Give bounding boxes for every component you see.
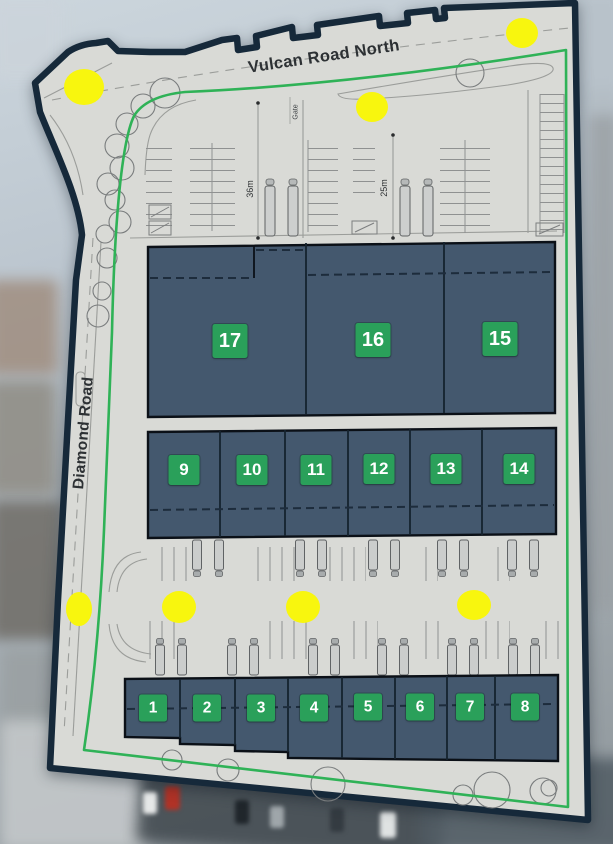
dimension-label-36m: 36m <box>245 180 255 198</box>
unit-badge-2[interactable]: 2 <box>193 695 221 722</box>
unit-badge-14[interactable]: 14 <box>504 454 535 484</box>
unit-badge-13[interactable]: 13 <box>431 454 462 484</box>
unit-badge-8[interactable]: 8 <box>511 694 539 721</box>
highlight-dot[interactable] <box>457 590 491 620</box>
unit-badge-5[interactable]: 5 <box>354 694 382 721</box>
unit-badge-15[interactable]: 15 <box>483 322 518 356</box>
unit-badge-4[interactable]: 4 <box>300 695 328 722</box>
site-plan-page: Vulcan Road North Diamond Road Gate 36m … <box>0 0 613 844</box>
highlight-dot[interactable] <box>356 92 388 122</box>
unit-block-9-14 <box>148 428 556 538</box>
unit-badge-6[interactable]: 6 <box>406 694 434 721</box>
unit-badge-16[interactable]: 16 <box>356 323 391 357</box>
dimension-label-25m: 25m <box>379 179 389 197</box>
highlight-dot[interactable] <box>66 592 92 626</box>
unit-badge-10[interactable]: 10 <box>237 455 268 485</box>
unit-badge-11[interactable]: 11 <box>301 455 332 485</box>
unit-row-middle <box>148 428 556 538</box>
highlight-dot[interactable] <box>64 69 104 105</box>
highlight-dot[interactable] <box>286 591 320 623</box>
unit-badge-9[interactable]: 9 <box>169 455 200 485</box>
unit-badge-3[interactable]: 3 <box>247 695 275 722</box>
highlight-dot[interactable] <box>162 591 196 623</box>
unit-badge-17[interactable]: 17 <box>213 324 248 358</box>
unit-badge-12[interactable]: 12 <box>364 454 395 484</box>
unit-badge-7[interactable]: 7 <box>456 694 484 721</box>
gate-label: Gate <box>293 104 300 119</box>
highlight-dot[interactable] <box>506 18 538 48</box>
unit-badge-1[interactable]: 1 <box>139 695 167 722</box>
